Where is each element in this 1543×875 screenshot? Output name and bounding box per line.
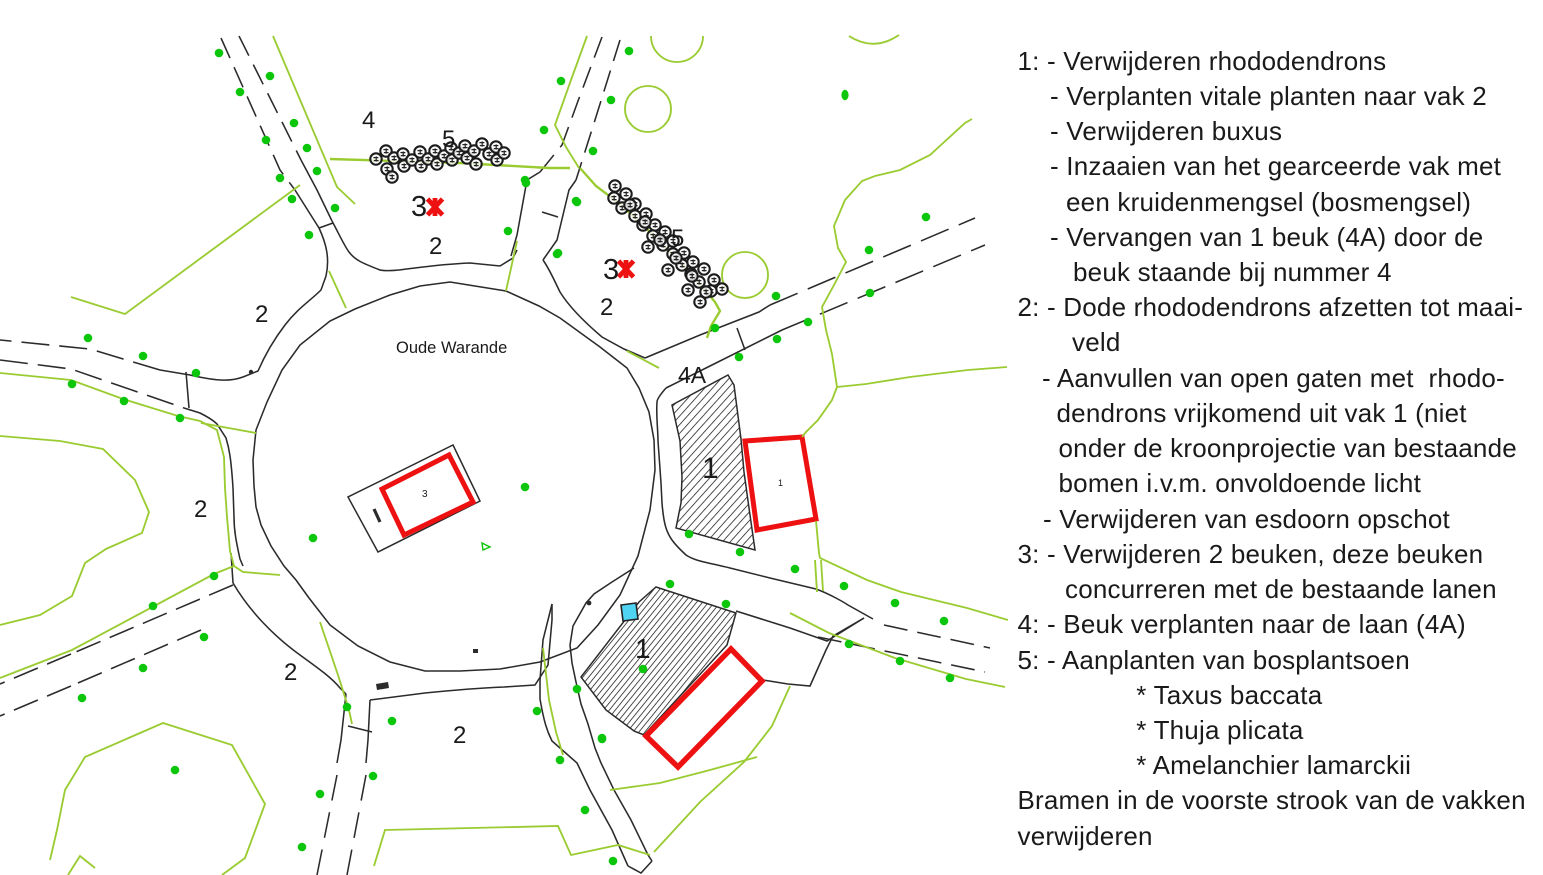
svg-text:5: 5 xyxy=(671,225,684,252)
svg-text:2: 2 xyxy=(284,659,297,686)
svg-text:Oude Warande: Oude Warande xyxy=(396,339,507,357)
svg-text:2: 2 xyxy=(453,722,466,749)
svg-text:5: 5 xyxy=(442,126,455,153)
svg-text:4A: 4A xyxy=(678,362,707,388)
svg-text:2: 2 xyxy=(600,294,613,321)
svg-text:2: 2 xyxy=(194,496,207,523)
svg-text:1: 1 xyxy=(635,633,651,664)
svg-text:1: 1 xyxy=(702,452,719,485)
svg-text:1: 1 xyxy=(778,478,783,488)
svg-text:2: 2 xyxy=(255,301,268,328)
svg-text:2: 2 xyxy=(429,233,442,260)
svg-text:3: 3 xyxy=(422,489,428,500)
svg-text:3: 3 xyxy=(603,254,619,286)
svg-text:3: 3 xyxy=(411,191,427,223)
svg-text:4: 4 xyxy=(362,107,375,134)
